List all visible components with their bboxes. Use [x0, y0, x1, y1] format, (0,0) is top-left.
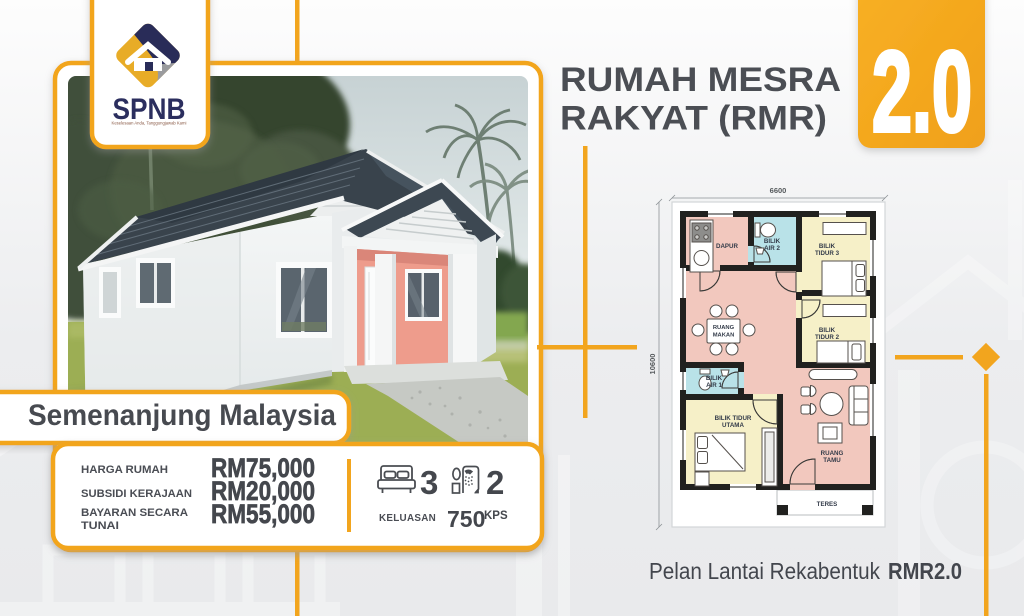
svg-text:BILIK TIDUR: BILIK TIDUR [715, 415, 752, 422]
svg-text:RUANG: RUANG [821, 450, 844, 457]
svg-text:6600: 6600 [770, 186, 787, 195]
svg-text:AIR 2: AIR 2 [764, 245, 780, 252]
svg-text:Semenanjung Malaysia: Semenanjung Malaysia [28, 399, 336, 432]
svg-text:2: 2 [486, 464, 504, 501]
svg-text:DAPUR: DAPUR [716, 243, 739, 250]
svg-text:TIDUR 3: TIDUR 3 [815, 250, 840, 257]
svg-text:BILIK: BILIK [819, 327, 836, 334]
svg-text:HARGA RUMAH: HARGA RUMAH [81, 464, 168, 476]
svg-text:TUNAI: TUNAI [81, 520, 119, 532]
svg-text:KPS: KPS [484, 510, 508, 522]
svg-text:Pelan Lantai Rekabentuk: Pelan Lantai Rekabentuk [649, 558, 880, 584]
svg-text:2.0: 2.0 [872, 29, 972, 156]
svg-text:TERES: TERES [817, 501, 838, 508]
svg-text:UTAMA: UTAMA [722, 422, 744, 429]
svg-text:SUBSIDI KERAJAAN: SUBSIDI KERAJAAN [81, 488, 192, 500]
svg-text:BILIK: BILIK [819, 243, 836, 250]
svg-text:BAYARAN SECARA: BAYARAN SECARA [81, 507, 188, 519]
svg-text:RUANG: RUANG [713, 325, 735, 331]
svg-text:RUMAH MESRA: RUMAH MESRA [560, 61, 841, 99]
svg-text:Keselesaan Anda, Tanggungjawab: Keselesaan Anda, Tanggungjawab Kami [112, 121, 187, 126]
svg-text:AIR 1: AIR 1 [706, 382, 722, 389]
svg-text:TIDUR 2: TIDUR 2 [815, 334, 840, 341]
svg-text:KELUASAN: KELUASAN [379, 512, 436, 524]
svg-text:750: 750 [447, 506, 485, 532]
svg-text:10600: 10600 [648, 354, 657, 375]
svg-text:TAMU: TAMU [823, 457, 841, 464]
svg-text:RMR2.0: RMR2.0 [888, 558, 962, 584]
svg-text:RM55,000: RM55,000 [211, 499, 315, 529]
svg-text:BILIK: BILIK [764, 238, 781, 245]
svg-text:3: 3 [420, 464, 438, 501]
svg-text:MAKAN: MAKAN [713, 333, 735, 339]
svg-text:BILIK: BILIK [706, 375, 723, 382]
svg-text:RAKYAT (RMR): RAKYAT (RMR) [560, 100, 827, 138]
